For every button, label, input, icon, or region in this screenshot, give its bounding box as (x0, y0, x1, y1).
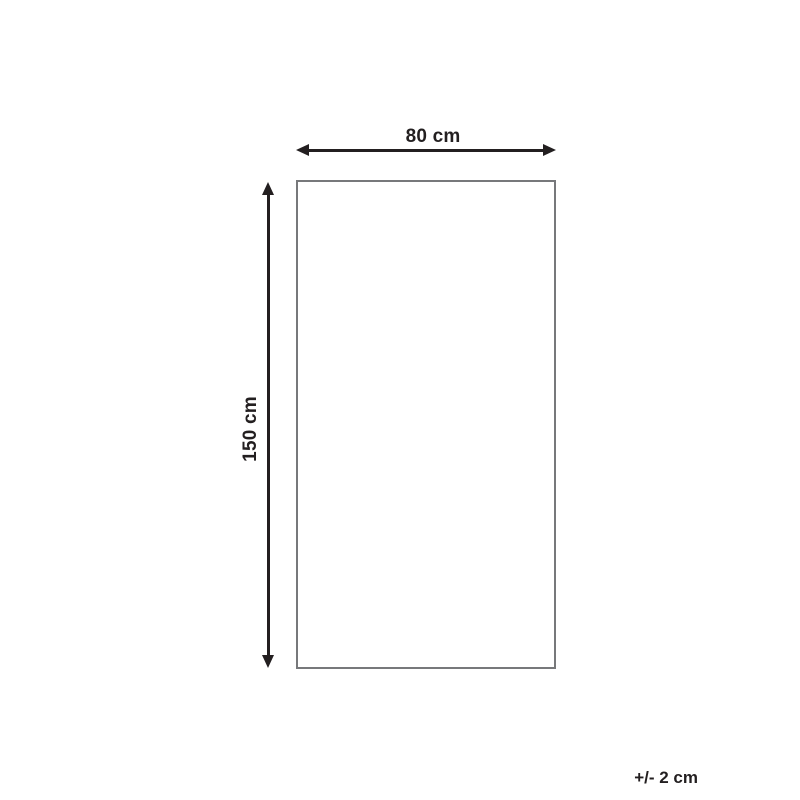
height-dimension-label: 150 cm (240, 379, 262, 479)
width-dimension-label: 80 cm (373, 126, 493, 148)
tolerance-label: +/- 2 cm (634, 768, 698, 788)
product-outline-rectangle (296, 180, 556, 669)
arrow-down-head-icon (262, 655, 274, 668)
arrow-right-head-icon (543, 144, 556, 156)
dimension-diagram: 80 cm 150 cm +/- 2 cm (0, 0, 800, 800)
arrow-line (305, 149, 547, 152)
height-dimension-arrow-icon (262, 182, 275, 668)
arrow-line (267, 191, 270, 659)
